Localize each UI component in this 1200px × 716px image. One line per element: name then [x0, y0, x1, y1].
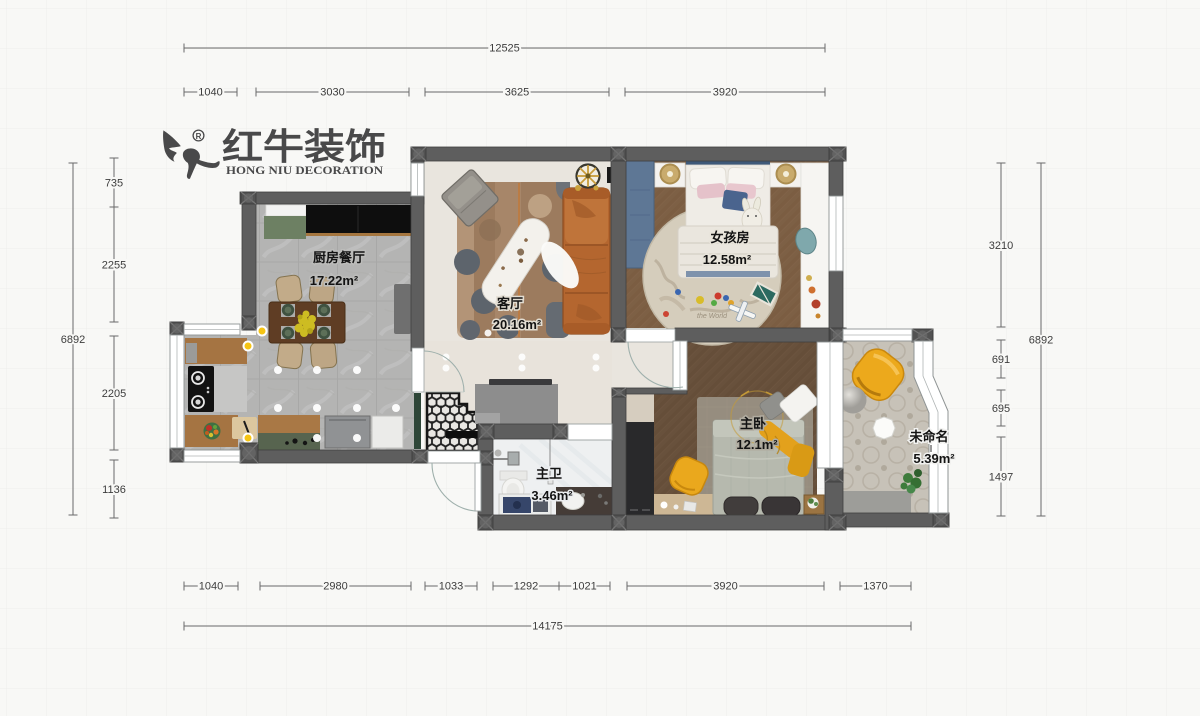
svg-text:HONG NIU DECORATION: HONG NIU DECORATION — [226, 165, 384, 177]
svg-text:R: R — [196, 132, 202, 141]
svg-text:主卧: 主卧 — [740, 416, 766, 431]
svg-text:20.16m²: 20.16m² — [493, 317, 542, 332]
svg-text:1040: 1040 — [199, 581, 223, 593]
svg-text:12.1m²: 12.1m² — [736, 437, 778, 452]
svg-text:1040: 1040 — [198, 87, 222, 99]
svg-text:14175: 14175 — [532, 621, 563, 633]
svg-text:3.46m²: 3.46m² — [531, 488, 573, 503]
svg-text:12525: 12525 — [489, 43, 520, 55]
svg-text:1033: 1033 — [439, 581, 463, 593]
svg-text:3920: 3920 — [713, 581, 737, 593]
svg-text:客厅: 客厅 — [497, 296, 523, 311]
svg-text:6892: 6892 — [1029, 335, 1053, 347]
svg-text:691: 691 — [992, 354, 1010, 366]
svg-text:6892: 6892 — [61, 334, 85, 346]
svg-text:695: 695 — [992, 403, 1010, 415]
svg-text:未命名: 未命名 — [908, 429, 948, 444]
svg-text:3920: 3920 — [713, 87, 737, 99]
svg-text:the World: the World — [697, 313, 728, 320]
svg-text:女孩房: 女孩房 — [710, 230, 749, 245]
svg-text:5.39m²: 5.39m² — [913, 451, 955, 466]
svg-text:3210: 3210 — [989, 240, 1013, 252]
svg-text:1370: 1370 — [863, 581, 887, 593]
svg-text:1292: 1292 — [514, 581, 538, 593]
svg-text:12.58m²: 12.58m² — [703, 252, 752, 267]
svg-text:3625: 3625 — [505, 87, 529, 99]
svg-text:2980: 2980 — [323, 581, 347, 593]
svg-text:1136: 1136 — [102, 484, 126, 496]
svg-text:3030: 3030 — [320, 87, 344, 99]
svg-text:17.22m²: 17.22m² — [310, 273, 359, 288]
svg-text:1497: 1497 — [989, 472, 1013, 484]
svg-text:红牛装饰: 红牛装饰 — [222, 126, 386, 167]
svg-text:厨房餐厅: 厨房餐厅 — [313, 250, 365, 265]
svg-text:主卫: 主卫 — [536, 466, 562, 481]
svg-text:2255: 2255 — [102, 260, 126, 272]
svg-text:2205: 2205 — [102, 388, 126, 400]
svg-text:735: 735 — [105, 178, 123, 190]
svg-text:1021: 1021 — [572, 581, 596, 593]
